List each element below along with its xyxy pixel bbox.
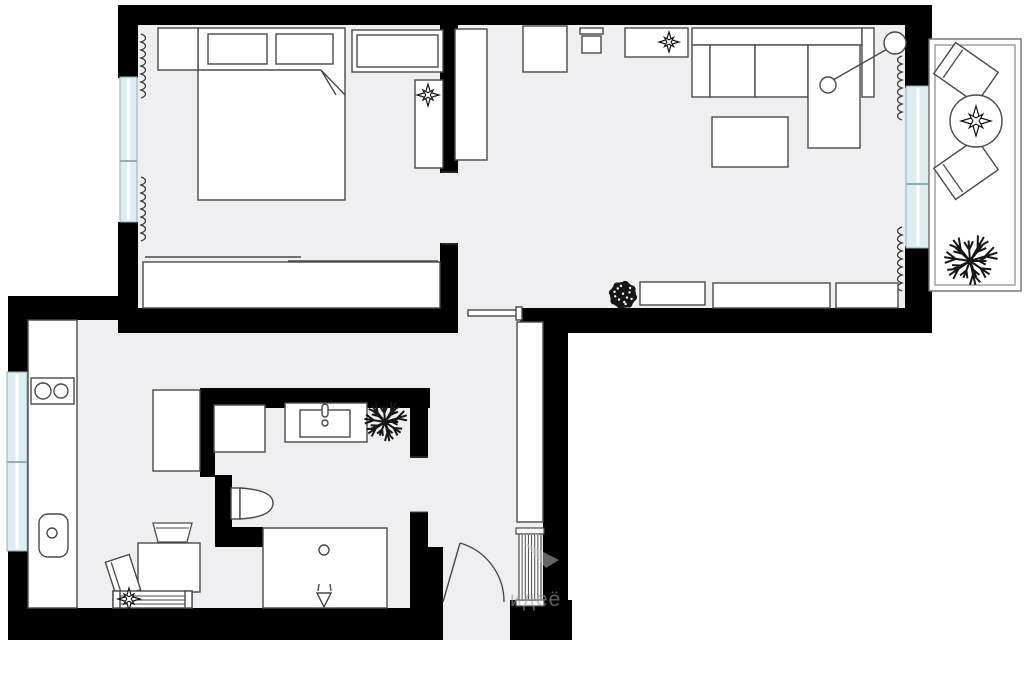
nightstand — [158, 28, 198, 70]
coffee-table — [712, 117, 788, 167]
wall-divider-lower — [440, 243, 458, 312]
wall-bathroom-bottom-left — [215, 527, 263, 547]
wall-hall-right — [543, 333, 568, 640]
floor-plan — [0, 0, 1024, 681]
dresser-inner — [357, 35, 438, 67]
floor-lamp-shade — [884, 32, 906, 54]
wall-bottom-left — [8, 608, 443, 640]
sofa-chaise — [808, 45, 860, 148]
wall-bedroom-left-upper — [118, 25, 138, 78]
sofa-back — [692, 28, 862, 45]
hob-burner — [54, 384, 68, 398]
toilet-tank — [231, 488, 240, 519]
sofa-seat — [755, 45, 808, 97]
wall-living-right-lower — [905, 246, 932, 333]
kitchen-counter — [28, 320, 77, 608]
wall-bathroom-right-lower — [410, 512, 428, 547]
wardrobe-sliding — [143, 262, 440, 308]
shower — [263, 528, 387, 608]
desk-chair-back — [580, 28, 603, 34]
wall-bedroom-bottom — [118, 308, 458, 333]
hall-closet — [517, 322, 543, 522]
dining-chair — [153, 523, 192, 542]
wall-top — [118, 5, 932, 25]
sofa-seat — [710, 45, 755, 97]
armchair — [523, 26, 567, 72]
wall-living-right-upper — [905, 25, 932, 88]
pillow — [276, 34, 333, 64]
wall-entry-left — [410, 547, 443, 608]
washing-machine — [214, 405, 265, 452]
bench-cap — [185, 591, 192, 608]
sofa-armrest — [692, 45, 710, 97]
sideboard — [836, 283, 898, 308]
wall-bathroom-right-upper — [410, 408, 428, 458]
pillow — [208, 34, 267, 64]
sideboard — [713, 283, 830, 308]
wall-living-bottom — [520, 308, 932, 333]
sink-drain — [47, 528, 57, 538]
radiator — [516, 528, 544, 606]
floor-lamp-base — [820, 77, 836, 93]
dining-table — [138, 543, 200, 592]
wall-kitchen-left-upper — [8, 310, 28, 373]
faucet — [322, 404, 328, 417]
wall-bathroom-left-step — [215, 475, 232, 527]
desk-chair-seat — [582, 36, 601, 53]
hob-burner — [35, 383, 51, 399]
sideboard — [640, 282, 705, 305]
faucet-dot — [322, 420, 328, 426]
pocket-door — [468, 310, 518, 316]
wall-bathroom-left — [200, 388, 215, 477]
fridge — [153, 390, 200, 471]
floor-plan-page: идеё — [0, 0, 1024, 681]
living-wardrobe — [455, 29, 487, 160]
shower-drain — [319, 545, 329, 555]
pocket-door-cap — [516, 307, 522, 320]
